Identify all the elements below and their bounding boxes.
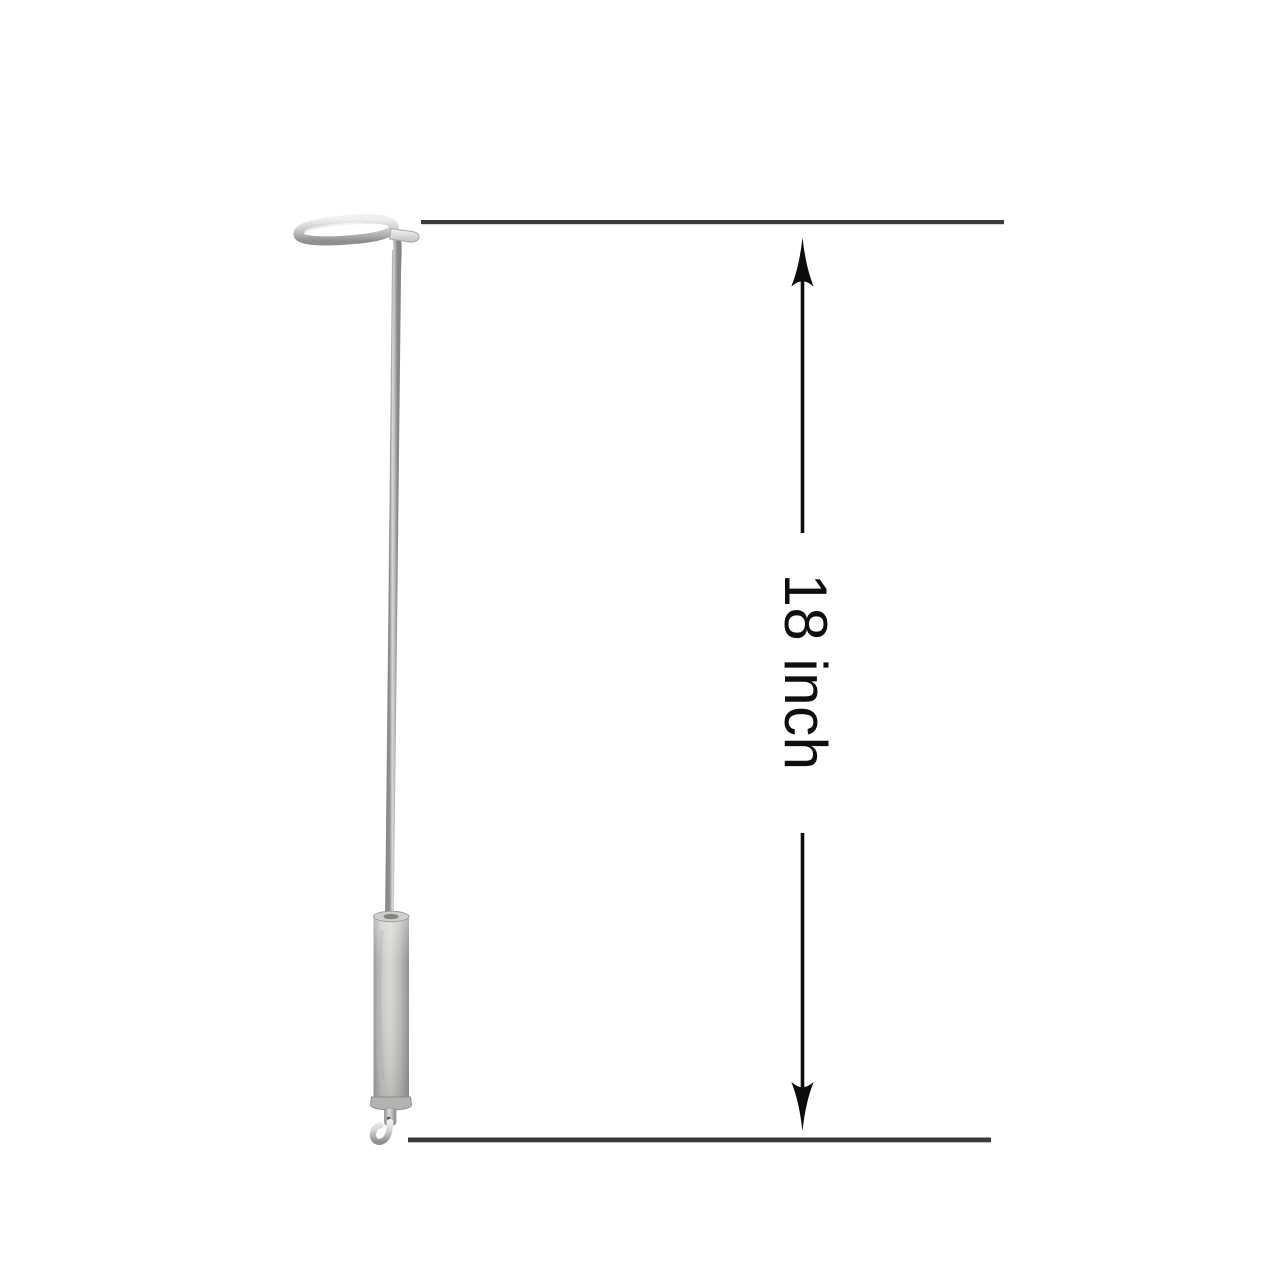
dimension-label: 18 inch [772,574,839,771]
shaft-rod [390,231,398,916]
handle-end-tab [390,229,420,243]
hook-tip [373,1108,396,1142]
dimension-bottom-extent-line [408,1138,991,1143]
dimension-arrow-down [791,833,813,1131]
dimension-annotation: 18 inch [408,220,1004,1142]
dimension-top-extent-line [421,220,1004,224]
product-dimension-figure: 18 inch [0,0,1280,1280]
spring-sleeve [371,911,412,1110]
tool-photo [298,219,419,1142]
dimension-arrow-up [791,238,813,534]
sleeve-top-cap-hole [384,914,399,919]
figure-canvas: 18 inch [0,0,1280,1280]
